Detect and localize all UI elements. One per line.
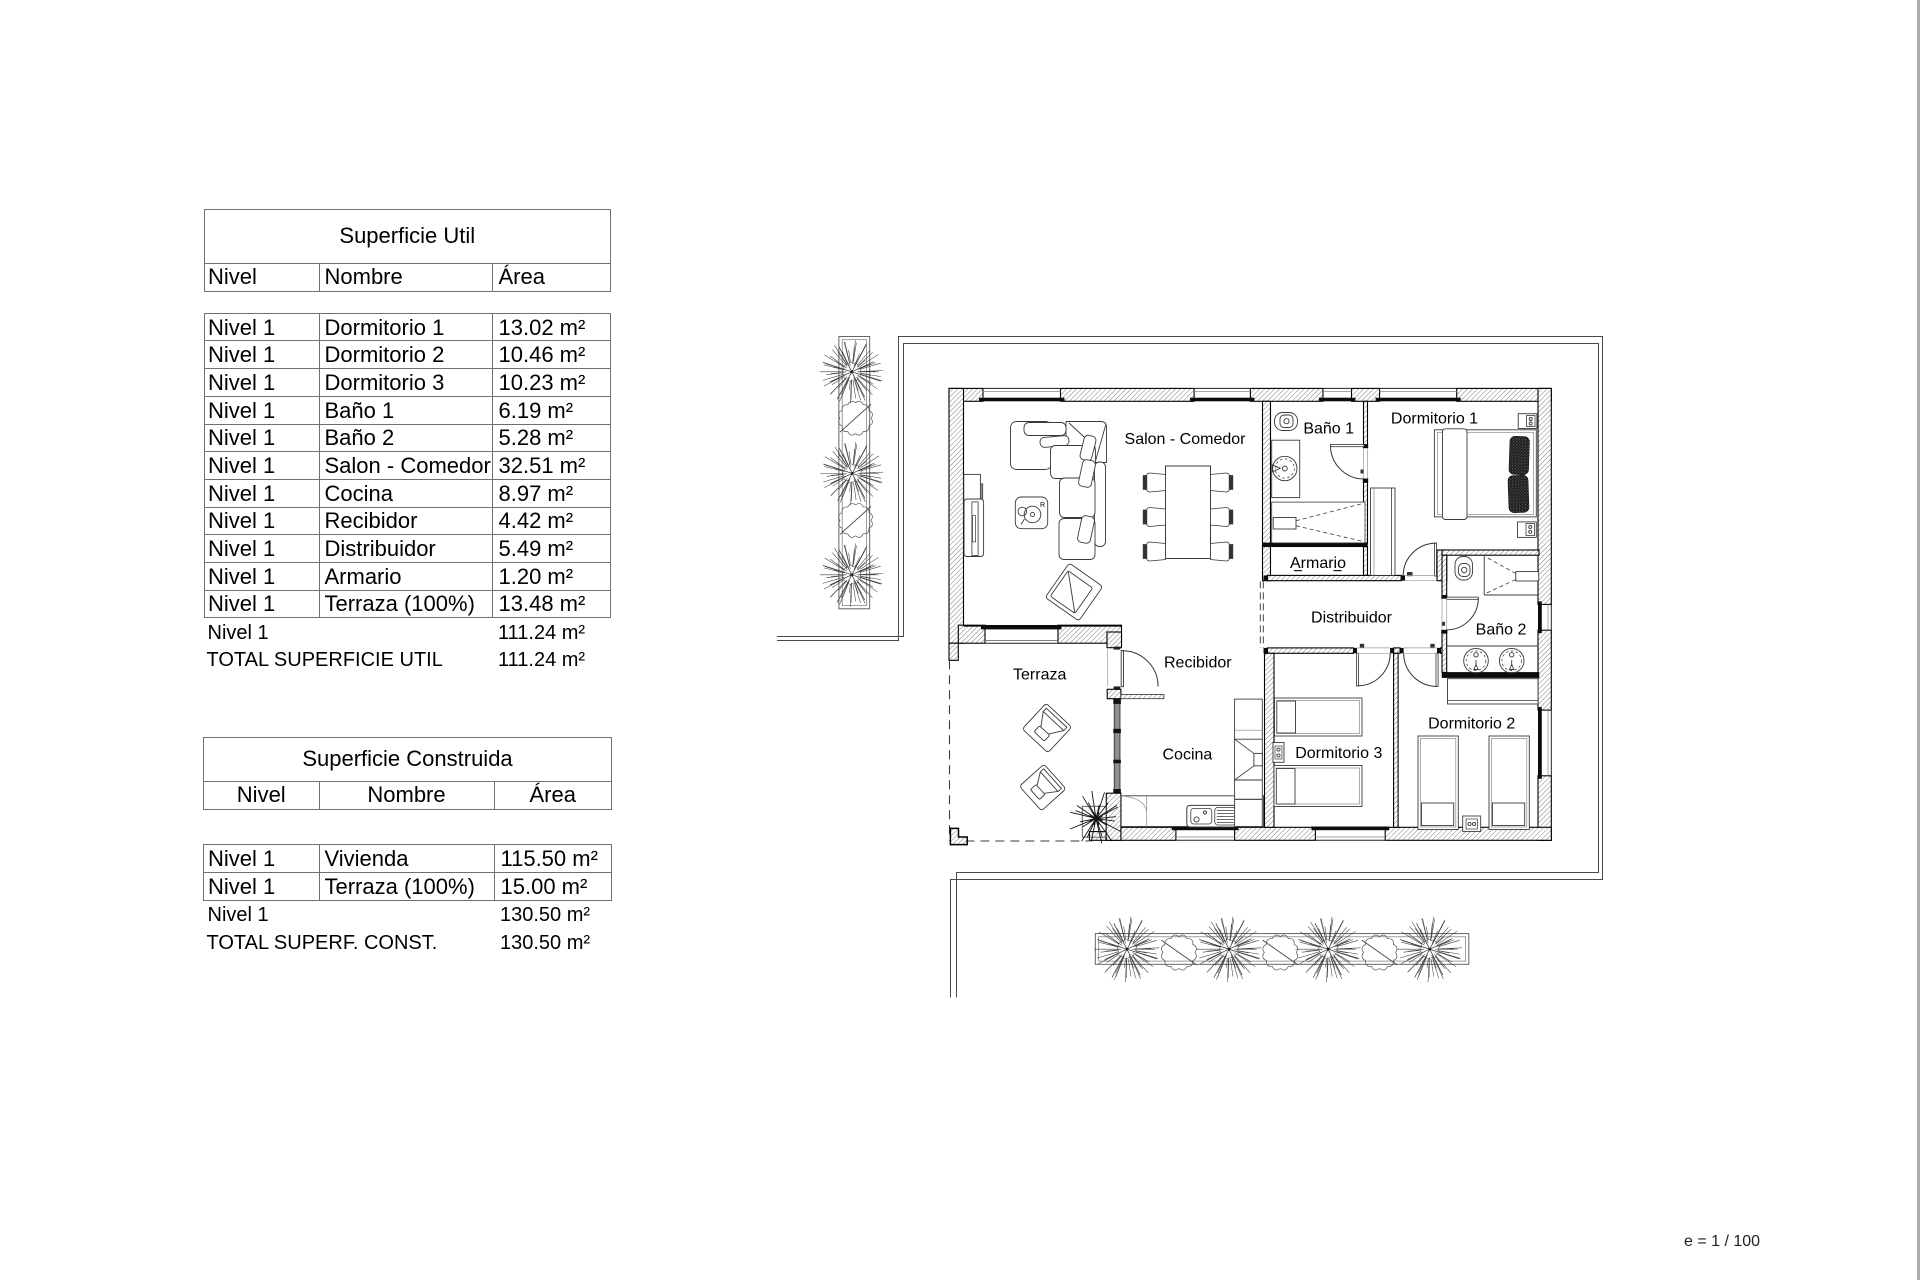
svg-text:Dormitorio 1: Dormitorio 1	[1391, 411, 1478, 428]
svg-text:Dormitorio 3: Dormitorio 3	[1295, 745, 1382, 762]
svg-text:Baño 1: Baño 1	[1303, 421, 1354, 438]
svg-text:Cocina: Cocina	[1162, 747, 1212, 764]
svg-text:Dormitorio 2: Dormitorio 2	[1428, 716, 1515, 733]
svg-text:Distribuidor: Distribuidor	[1311, 610, 1393, 627]
svg-text:Recibidor: Recibidor	[1164, 655, 1232, 672]
svg-text:Baño 2: Baño 2	[1476, 622, 1527, 639]
svg-text:Terraza: Terraza	[1013, 667, 1066, 684]
svg-text:R: R	[1040, 502, 1045, 509]
svg-text:Armario: Armario	[1290, 555, 1346, 572]
svg-text:Salon - Comedor: Salon - Comedor	[1125, 431, 1247, 448]
